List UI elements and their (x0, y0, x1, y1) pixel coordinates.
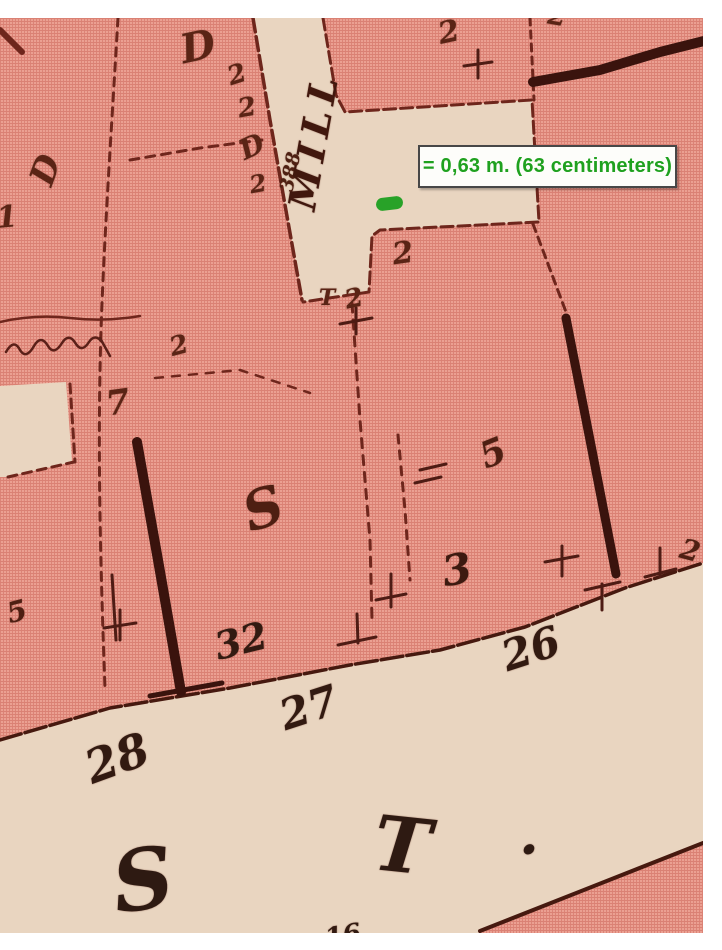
map-label-28: 28 (79, 725, 155, 790)
map-label-d: D (177, 24, 219, 70)
map-label-5: 5 (4, 596, 30, 628)
map-screenshot: D22D2388MILLD1222T227S532532272628ST·16 … (0, 0, 722, 950)
map-label-2: 2 (677, 535, 703, 567)
map-label-16: 16 (323, 920, 363, 933)
map-label-d: D (25, 150, 67, 189)
map-label-2: 2 (436, 18, 463, 50)
map-label-2: 2 (224, 60, 249, 90)
map-label-mill: MILL (283, 67, 345, 213)
map-label-5: 5 (475, 432, 512, 475)
map-label-2: 2 (167, 331, 191, 361)
map-label-27: 27 (275, 679, 344, 737)
map-label-t: T (319, 287, 335, 309)
map-label-2: 2 (546, 18, 568, 31)
map-label-dot: · (519, 822, 539, 878)
map-label-1: 1 (0, 202, 19, 234)
map-label-t: T (370, 805, 434, 886)
scale-annotation-box: = 0,63 m. (63 centimeters) (418, 145, 677, 188)
map-label-32: 32 (211, 616, 272, 666)
map-label-7: 7 (104, 385, 132, 422)
map-label-3: 3 (439, 547, 475, 593)
map-label-2: 2 (248, 171, 269, 198)
map-label-d: D (235, 129, 269, 165)
map-label-26: 26 (497, 620, 566, 678)
map-label-2: 2 (342, 284, 365, 313)
map-label-s: S (107, 834, 179, 926)
map-label-s: S (236, 476, 290, 539)
map-label-2: 2 (391, 238, 416, 271)
map-label-2: 2 (236, 94, 258, 123)
scale-annotation-text: = 0,63 m. (63 centimeters) (423, 155, 672, 178)
